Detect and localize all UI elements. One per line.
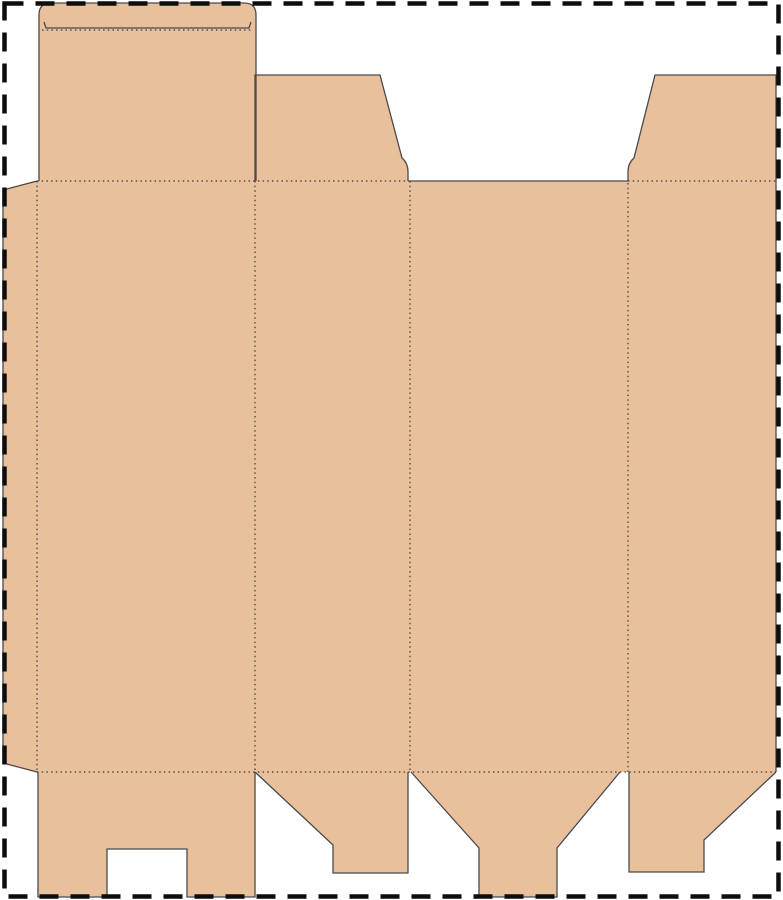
template-page: [0, 0, 783, 900]
dieline-svg: [0, 0, 783, 900]
bottom-flap-1: [38, 772, 255, 897]
dust-flap-right: [628, 75, 776, 181]
bottom-flap-3: [411, 772, 620, 897]
glue-flap: [3, 181, 37, 772]
dust-flap-left: [255, 75, 408, 181]
bottom-flap-2: [255, 772, 408, 873]
bottom-flap-4: [629, 772, 776, 872]
main-body-panels: [37, 181, 776, 772]
